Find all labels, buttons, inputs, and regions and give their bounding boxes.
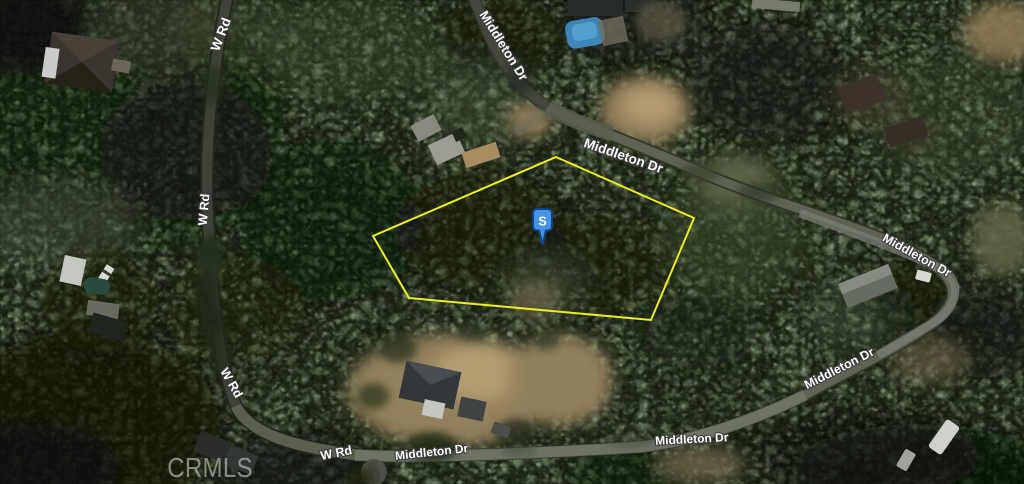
svg-text:S: S xyxy=(538,215,546,229)
svg-text:W Rd: W Rd xyxy=(196,193,213,226)
svg-text:CRMLS: CRMLS xyxy=(167,451,253,483)
